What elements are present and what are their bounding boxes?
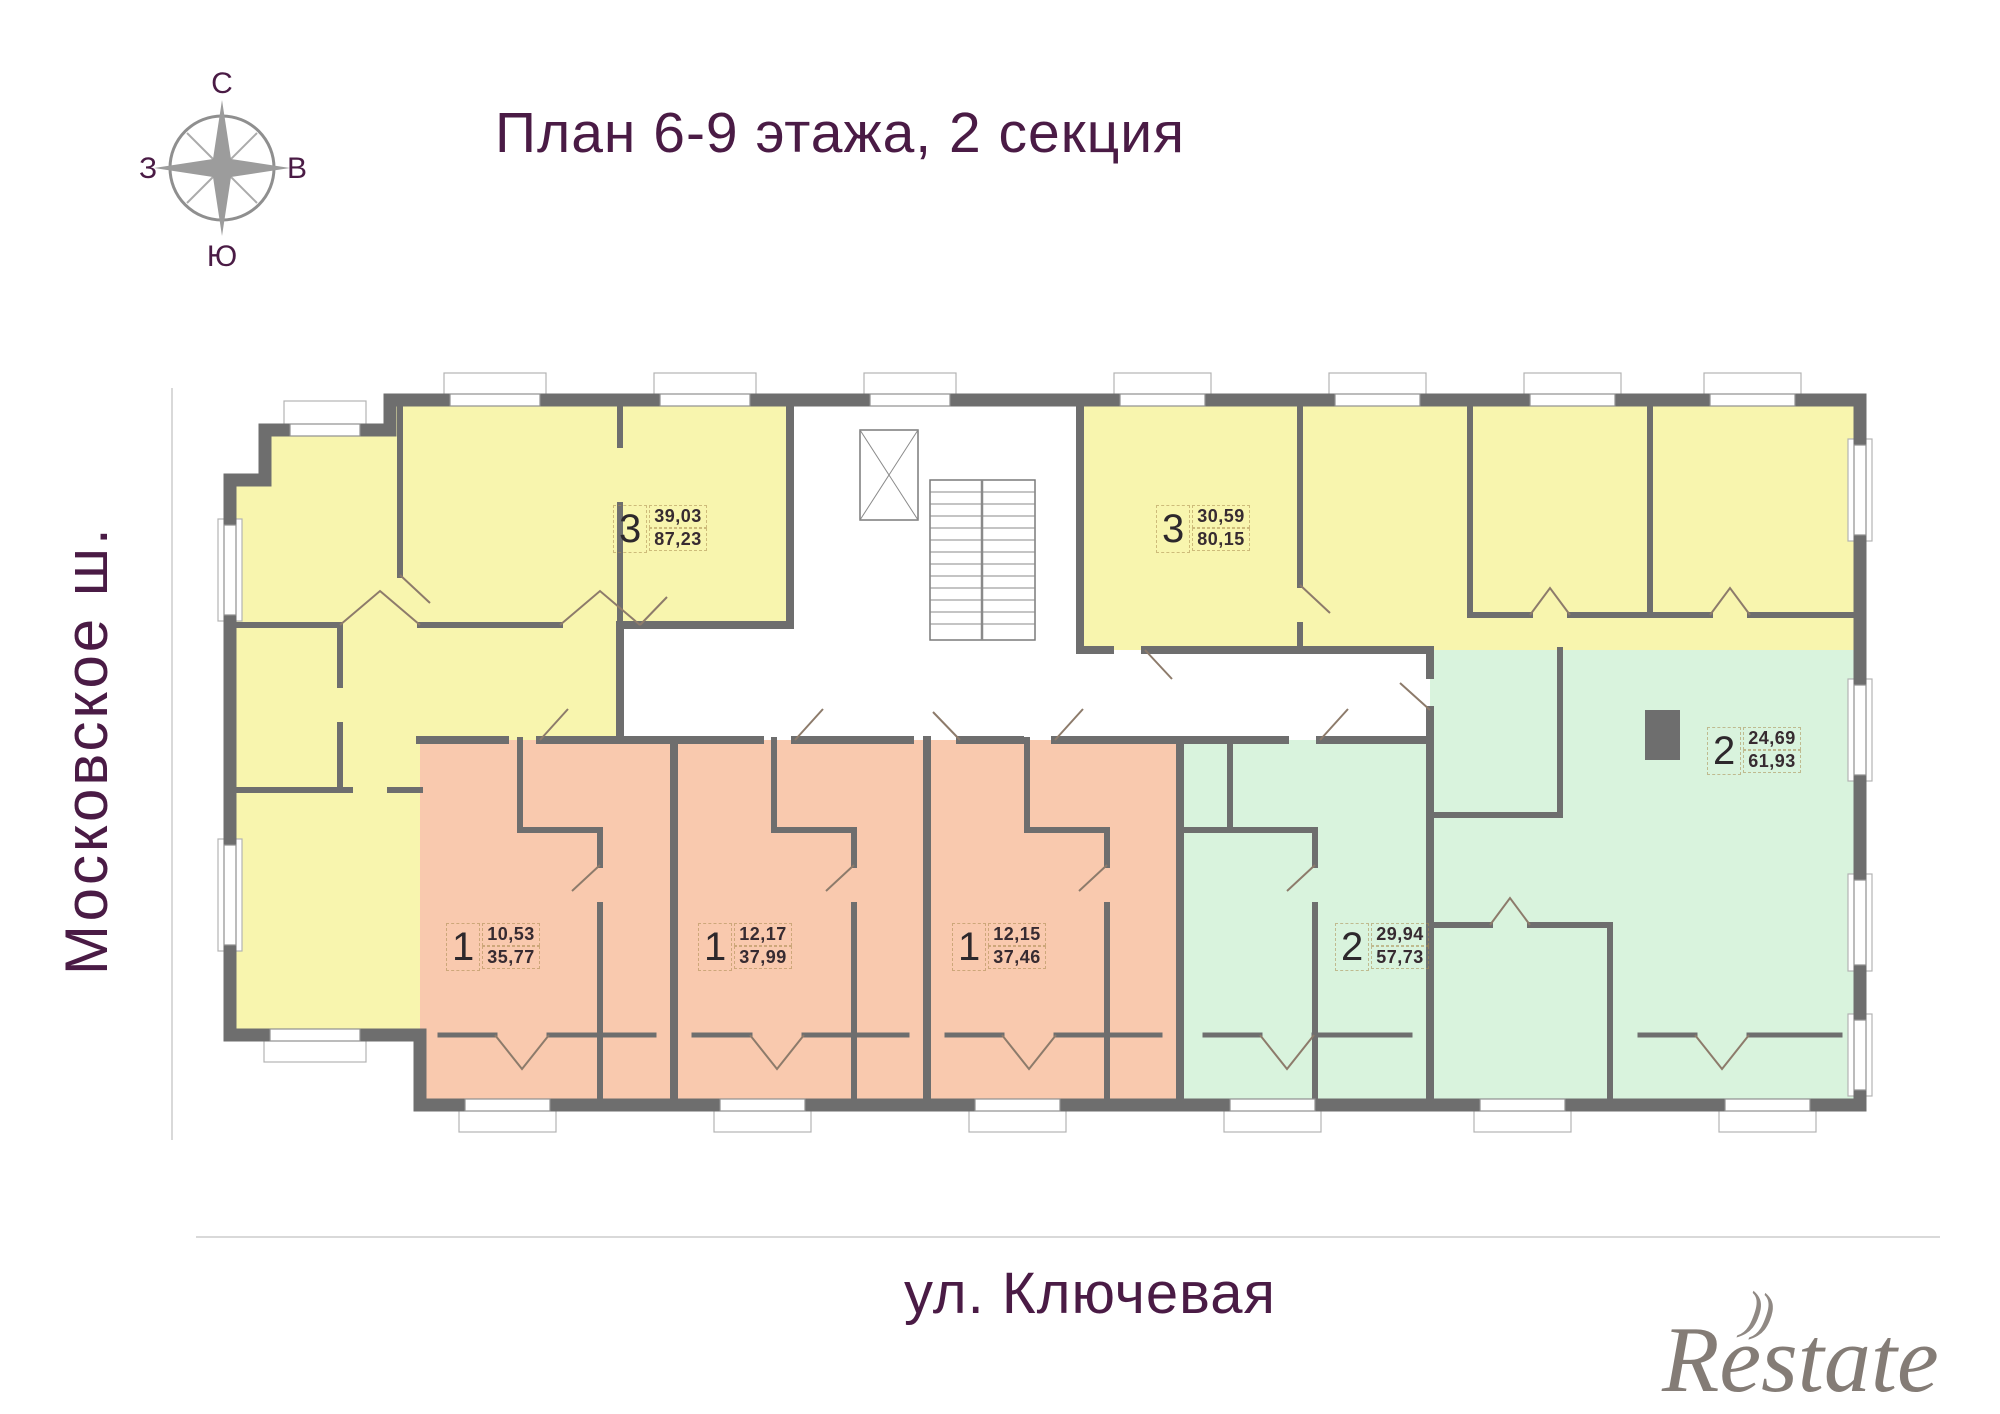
page-title: План 6-9 этажа, 2 секция [340, 100, 1340, 166]
left-divider-line [171, 388, 173, 1140]
compass-east-label: В [287, 152, 307, 185]
bottom-divider-line [196, 1236, 1940, 1238]
total-area: 80,15 [1192, 528, 1250, 551]
staircase [930, 480, 1035, 640]
total-area: 35,77 [482, 946, 540, 969]
apartment-rooms: 3 [613, 505, 647, 553]
street-label-moskovskoe: Московское ш. [52, 400, 144, 1100]
apartment-label-1room-a: 1 10,53 35,77 [446, 923, 540, 971]
living-area: 29,94 [1371, 923, 1429, 946]
living-area: 10,53 [482, 923, 540, 946]
total-area: 37,99 [734, 946, 792, 969]
total-area: 37,46 [988, 946, 1046, 969]
apartment-fills [230, 400, 1860, 1105]
compass-south-label: Ю [207, 240, 237, 273]
duct-shaft [1645, 710, 1680, 760]
total-area: 57,73 [1371, 946, 1429, 969]
restate-watermark: )) Restate [1662, 1306, 1939, 1414]
apartment-rooms: 3 [1156, 505, 1190, 553]
compass-rose-icon: С В З Ю [137, 63, 307, 273]
apartment-rooms: 1 [952, 923, 986, 971]
apartment-label-3room-left: 3 39,03 87,23 [613, 505, 707, 553]
apartment-label-2room-left: 2 29,94 57,73 [1335, 923, 1429, 971]
apartment-rooms: 1 [698, 923, 732, 971]
compass-west-label: З [139, 152, 157, 185]
living-area: 24,69 [1743, 727, 1801, 750]
apartment-rooms: 2 [1707, 727, 1741, 775]
living-area: 39,03 [649, 505, 707, 528]
apartment-label-1room-c: 1 12,15 37,46 [952, 923, 1046, 971]
apartment-label-2room-right: 2 24,69 61,93 [1707, 727, 1801, 775]
restate-watermark-text: Restate [1662, 1308, 1939, 1412]
apartment-rooms: 2 [1335, 923, 1369, 971]
floor-plan: 3 39,03 87,23 3 30,59 80,15 1 10,53 35,7… [230, 385, 1910, 1120]
total-area: 87,23 [649, 528, 707, 551]
total-area: 61,93 [1743, 750, 1801, 773]
compass-star-icon [154, 100, 290, 236]
living-area: 12,15 [988, 923, 1046, 946]
apartment-label-3room-right: 3 30,59 80,15 [1156, 505, 1250, 553]
apartment-rooms: 1 [446, 923, 480, 971]
apartment-label-1room-b: 1 12,17 37,99 [698, 923, 792, 971]
living-area: 30,59 [1192, 505, 1250, 528]
floor-plan-page: План 6-9 этажа, 2 секция С В З Ю Московс… [0, 0, 2000, 1414]
elevator-shaft [860, 430, 918, 520]
street-label-klyuchevaya: ул. Ключевая [660, 1260, 1520, 1327]
living-area: 12,17 [734, 923, 792, 946]
compass-north-label: С [211, 67, 233, 100]
